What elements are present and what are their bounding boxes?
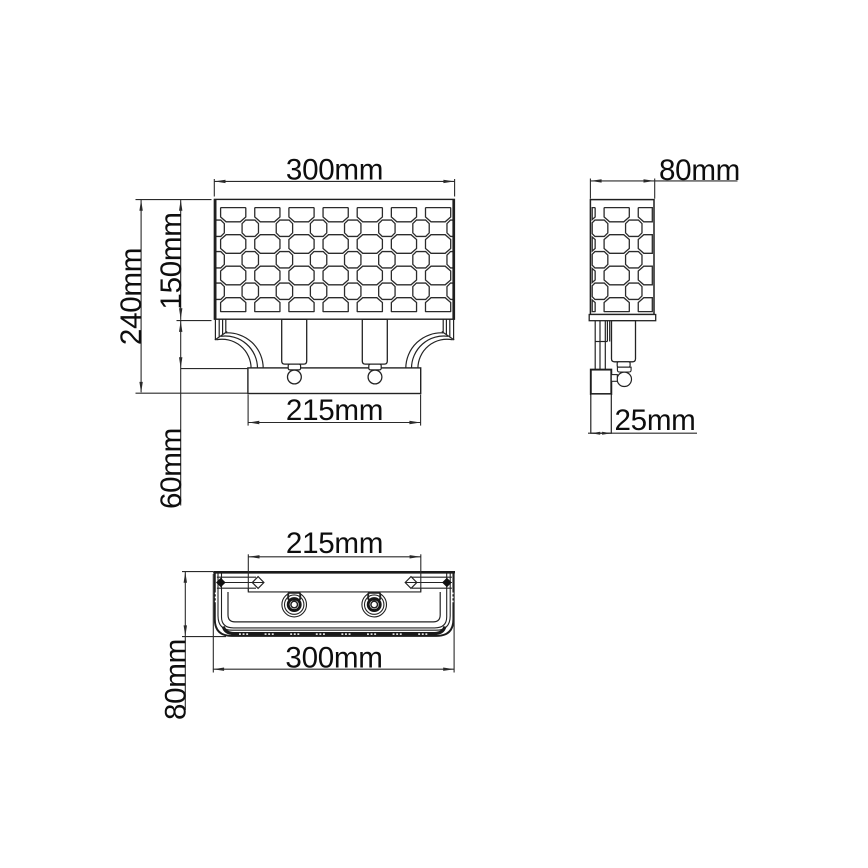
svg-text:60mm: 60mm	[155, 428, 188, 509]
svg-text:215mm: 215mm	[286, 527, 383, 560]
svg-text:215mm: 215mm	[286, 394, 383, 427]
svg-text:25mm: 25mm	[615, 404, 696, 437]
svg-text:80mm: 80mm	[659, 154, 740, 187]
svg-text:240mm: 240mm	[115, 248, 148, 345]
svg-text:300mm: 300mm	[285, 641, 382, 674]
svg-text:80mm: 80mm	[159, 639, 192, 720]
svg-text:150mm: 150mm	[155, 212, 188, 309]
svg-text:300mm: 300mm	[286, 154, 383, 187]
